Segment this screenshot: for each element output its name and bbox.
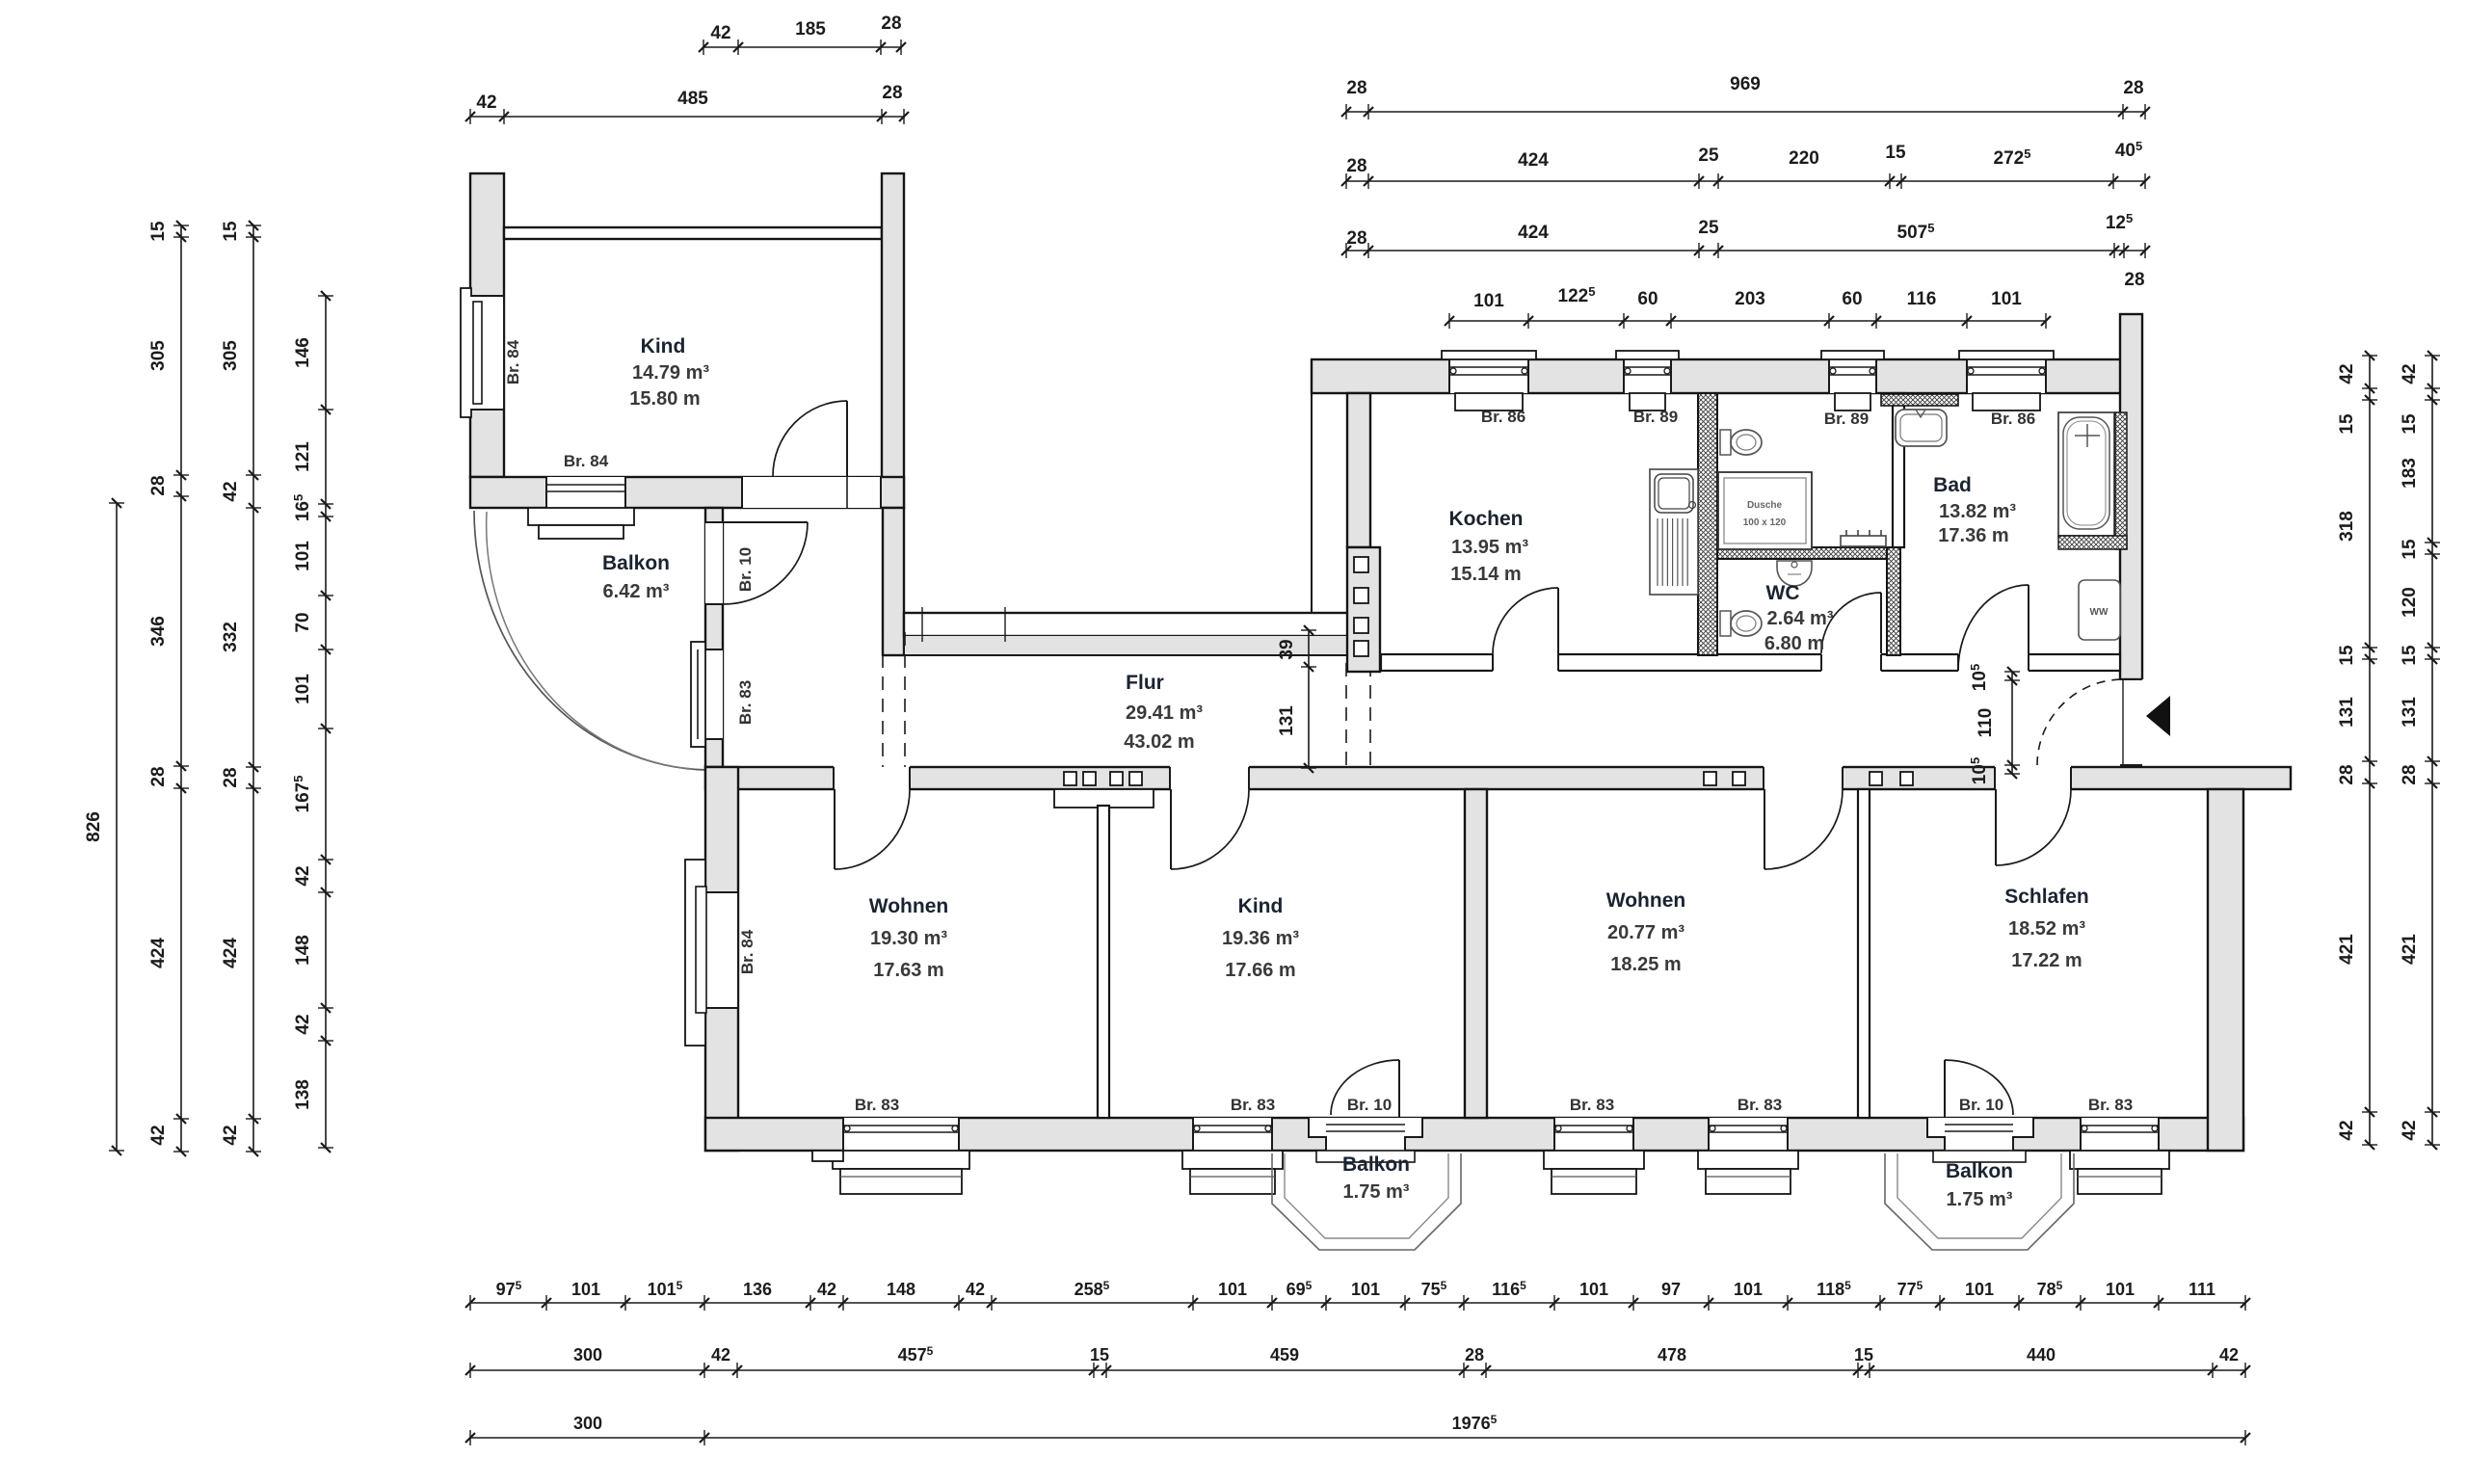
- svg-text:Br. 83: Br. 83: [1231, 1096, 1275, 1114]
- svg-text:478: 478: [1658, 1345, 1686, 1365]
- svg-text:111: 111: [2188, 1280, 2215, 1299]
- svg-text:15.14 m: 15.14 m: [1450, 564, 1521, 585]
- svg-text:969: 969: [1730, 74, 1761, 94]
- svg-text:116: 116: [1907, 289, 1937, 309]
- svg-text:101: 101: [571, 1280, 600, 1299]
- svg-text:28: 28: [1346, 78, 1366, 98]
- svg-text:19.36 m³: 19.36 m³: [1222, 928, 1299, 949]
- svg-text:120: 120: [2400, 587, 2420, 618]
- svg-text:60: 60: [1637, 289, 1658, 309]
- svg-text:318: 318: [2337, 511, 2357, 542]
- svg-text:WC: WC: [1766, 582, 1800, 604]
- svg-text:97: 97: [1661, 1280, 1681, 1299]
- svg-text:101: 101: [1991, 289, 2022, 309]
- svg-text:28: 28: [2124, 270, 2144, 290]
- svg-text:WW: WW: [2090, 607, 2109, 618]
- svg-text:Balkon: Balkon: [1946, 1160, 2013, 1182]
- svg-text:424: 424: [148, 938, 169, 968]
- svg-text:42: 42: [966, 1280, 985, 1299]
- svg-text:101: 101: [293, 674, 313, 704]
- svg-text:300: 300: [573, 1414, 602, 1433]
- svg-text:131: 131: [1277, 705, 1297, 736]
- svg-text:101: 101: [1351, 1280, 1380, 1299]
- svg-text:131: 131: [2337, 697, 2357, 728]
- svg-text:28: 28: [882, 83, 902, 103]
- svg-text:17.36 m: 17.36 m: [1938, 525, 2008, 546]
- svg-text:42: 42: [2337, 1120, 2357, 1140]
- svg-text:826: 826: [84, 811, 104, 842]
- svg-text:Br. 83: Br. 83: [2088, 1096, 2133, 1114]
- svg-text:13.82 m³: 13.82 m³: [1939, 501, 2016, 522]
- svg-text:42: 42: [2337, 363, 2357, 384]
- svg-text:18.25 m: 18.25 m: [1610, 954, 1681, 975]
- svg-text:42: 42: [293, 1014, 313, 1034]
- svg-text:28: 28: [1346, 156, 1366, 176]
- svg-text:459: 459: [1270, 1345, 1299, 1365]
- svg-text:15: 15: [2337, 413, 2357, 435]
- svg-text:101: 101: [1579, 1280, 1608, 1299]
- svg-text:Kochen: Kochen: [1448, 508, 1523, 530]
- svg-text:101: 101: [2106, 1280, 2135, 1299]
- svg-text:Balkon: Balkon: [602, 552, 670, 574]
- svg-text:Balkon: Balkon: [1342, 1153, 1410, 1176]
- svg-text:6.80 m: 6.80 m: [1764, 633, 1824, 654]
- svg-text:1.75 m³: 1.75 m³: [1343, 1181, 1410, 1203]
- svg-text:28: 28: [221, 767, 241, 787]
- svg-text:110: 110: [1976, 708, 1996, 738]
- svg-text:424: 424: [1518, 150, 1549, 171]
- svg-text:15: 15: [1885, 143, 1906, 163]
- svg-text:28: 28: [881, 13, 901, 34]
- svg-text:332: 332: [221, 622, 241, 652]
- svg-text:20.77 m³: 20.77 m³: [1607, 922, 1684, 943]
- svg-text:42: 42: [2400, 363, 2420, 384]
- svg-text:Wohnen: Wohnen: [1606, 889, 1685, 912]
- svg-text:42: 42: [148, 1125, 169, 1145]
- svg-text:101: 101: [1218, 1280, 1247, 1299]
- svg-text:101: 101: [1965, 1280, 1994, 1299]
- svg-text:14.79 m³: 14.79 m³: [632, 362, 709, 384]
- svg-text:42: 42: [710, 23, 730, 43]
- svg-text:60: 60: [1842, 289, 1862, 309]
- svg-text:Br. 84: Br. 84: [738, 929, 756, 974]
- svg-text:148: 148: [293, 935, 313, 966]
- svg-text:Br. 84: Br. 84: [504, 339, 522, 384]
- svg-text:101: 101: [293, 541, 313, 571]
- svg-text:15: 15: [148, 221, 169, 242]
- svg-text:131: 131: [2400, 697, 2420, 728]
- svg-text:101: 101: [1473, 291, 1504, 311]
- svg-text:Flur: Flur: [1126, 672, 1164, 694]
- svg-text:Kind: Kind: [641, 335, 686, 358]
- svg-text:Br. 10: Br. 10: [736, 547, 755, 592]
- svg-text:305: 305: [221, 340, 241, 371]
- svg-text:17.63 m: 17.63 m: [873, 960, 943, 981]
- svg-text:203: 203: [1735, 289, 1765, 309]
- svg-text:148: 148: [887, 1280, 915, 1299]
- svg-text:70: 70: [293, 612, 313, 632]
- svg-text:42: 42: [817, 1280, 836, 1299]
- svg-text:19.30 m³: 19.30 m³: [870, 928, 947, 949]
- svg-text:29.41 m³: 29.41 m³: [1126, 702, 1203, 724]
- svg-text:43.02 m: 43.02 m: [1124, 731, 1194, 753]
- svg-text:15: 15: [1854, 1345, 1873, 1365]
- svg-text:6.42 m³: 6.42 m³: [603, 581, 670, 602]
- svg-text:220: 220: [1789, 148, 1819, 169]
- svg-text:Br. 86: Br. 86: [1991, 410, 2035, 428]
- svg-text:183: 183: [2400, 458, 2420, 489]
- svg-text:15: 15: [1090, 1345, 1109, 1365]
- svg-text:15: 15: [221, 221, 241, 242]
- svg-text:485: 485: [677, 89, 708, 109]
- svg-text:300: 300: [573, 1345, 602, 1365]
- svg-text:15.80 m: 15.80 m: [629, 388, 700, 410]
- svg-text:18.52 m³: 18.52 m³: [2008, 918, 2085, 940]
- svg-text:Kind: Kind: [1238, 895, 1284, 917]
- svg-text:42: 42: [221, 481, 241, 501]
- svg-text:42: 42: [2400, 1120, 2420, 1140]
- svg-text:15: 15: [2400, 539, 2420, 560]
- svg-text:28: 28: [148, 475, 169, 495]
- svg-text:Schlafen: Schlafen: [2004, 886, 2089, 908]
- svg-text:121: 121: [293, 441, 313, 472]
- svg-text:28: 28: [2123, 78, 2143, 98]
- svg-text:17.22 m: 17.22 m: [2011, 950, 2082, 971]
- svg-text:42: 42: [2219, 1345, 2239, 1365]
- svg-text:185: 185: [795, 19, 826, 40]
- svg-text:15: 15: [2400, 645, 2420, 666]
- svg-text:42: 42: [293, 865, 313, 886]
- svg-text:13.95 m³: 13.95 m³: [1451, 537, 1528, 558]
- svg-text:146: 146: [293, 337, 313, 368]
- svg-text:Br. 83: Br. 83: [1570, 1096, 1614, 1114]
- svg-text:28: 28: [1465, 1345, 1484, 1365]
- svg-text:Br. 10: Br. 10: [1347, 1096, 1392, 1114]
- svg-text:42: 42: [476, 93, 496, 113]
- svg-text:305: 305: [148, 340, 169, 371]
- svg-text:Br. 89: Br. 89: [1824, 410, 1869, 428]
- svg-text:Br. 10: Br. 10: [1959, 1096, 2003, 1114]
- svg-text:42: 42: [711, 1345, 730, 1365]
- svg-text:424: 424: [1518, 223, 1549, 243]
- svg-text:100 x 120: 100 x 120: [1743, 517, 1787, 528]
- svg-text:15: 15: [2337, 645, 2357, 666]
- svg-text:Wohnen: Wohnen: [869, 895, 948, 917]
- svg-text:2.64 m³: 2.64 m³: [1767, 608, 1834, 629]
- svg-text:Br. 86: Br. 86: [1481, 408, 1525, 426]
- svg-text:421: 421: [2337, 934, 2357, 965]
- svg-text:25: 25: [1698, 146, 1719, 166]
- svg-text:Dusche: Dusche: [1747, 500, 1783, 511]
- svg-text:346: 346: [148, 616, 169, 647]
- svg-text:Br. 83: Br. 83: [1738, 1096, 1782, 1114]
- svg-text:28: 28: [2337, 764, 2357, 784]
- svg-text:Br. 83: Br. 83: [855, 1096, 899, 1114]
- svg-text:28: 28: [148, 766, 169, 786]
- svg-text:28: 28: [1346, 228, 1366, 249]
- svg-text:138: 138: [293, 1079, 313, 1110]
- svg-text:136: 136: [743, 1280, 772, 1299]
- svg-text:39: 39: [1277, 639, 1297, 659]
- svg-text:Br. 84: Br. 84: [564, 452, 609, 470]
- svg-text:42: 42: [221, 1125, 241, 1145]
- svg-text:15: 15: [2400, 413, 2420, 435]
- svg-text:1.75 m³: 1.75 m³: [1947, 1189, 2013, 1210]
- svg-text:Bad: Bad: [1933, 474, 1972, 496]
- svg-text:25: 25: [1698, 218, 1719, 238]
- svg-text:440: 440: [2027, 1345, 2056, 1365]
- svg-text:421: 421: [2400, 934, 2420, 965]
- svg-text:Br. 89: Br. 89: [1633, 408, 1678, 426]
- svg-text:19765: 19765: [1452, 1413, 1498, 1433]
- svg-text:Br. 83: Br. 83: [736, 680, 755, 725]
- svg-text:101: 101: [1734, 1280, 1763, 1299]
- svg-text:424: 424: [221, 938, 241, 968]
- svg-text:17.66 m: 17.66 m: [1225, 960, 1295, 981]
- svg-text:28: 28: [2400, 764, 2420, 784]
